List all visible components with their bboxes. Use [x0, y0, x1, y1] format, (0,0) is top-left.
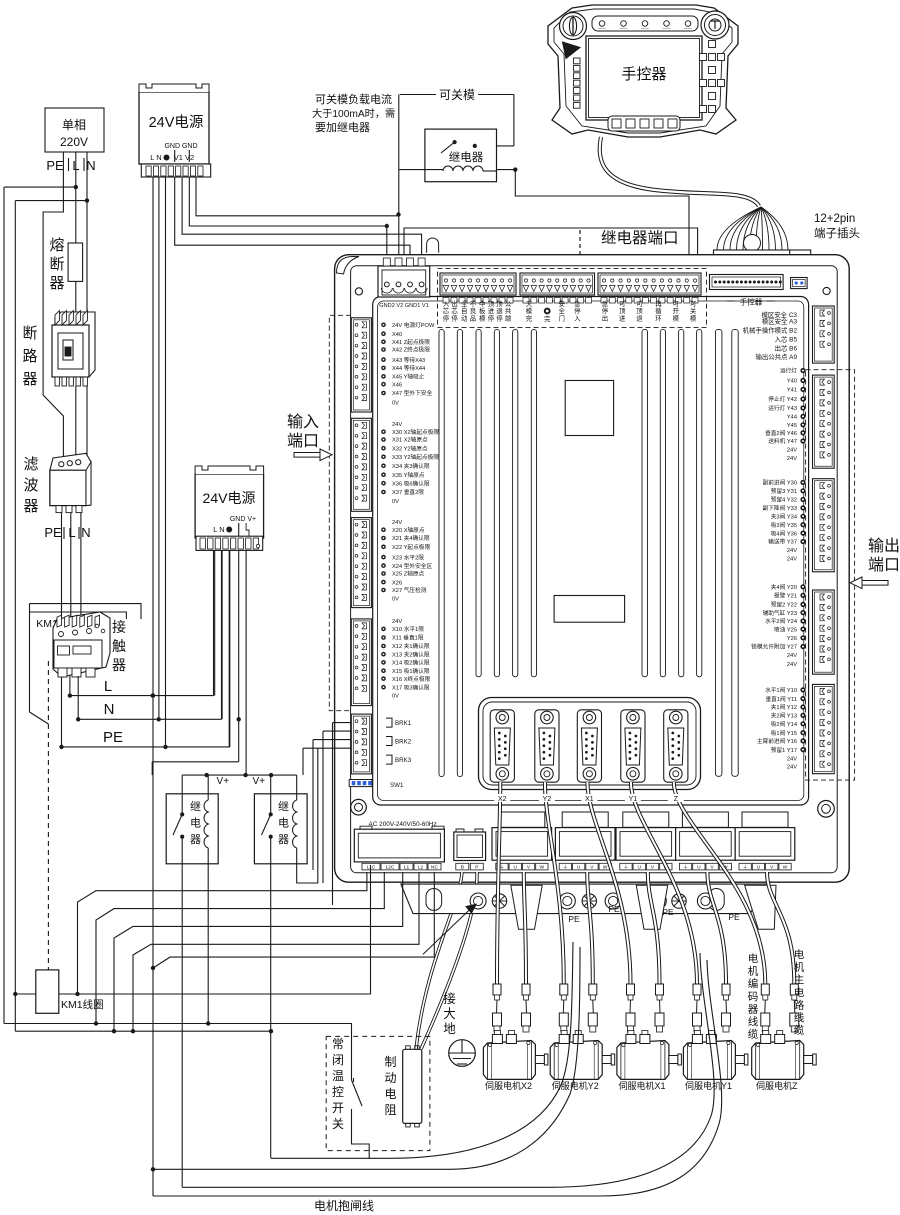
svg-text:模区安全 A3: 模区安全 A3: [762, 317, 798, 326]
svg-text:报警 Y21: 报警 Y21: [774, 592, 797, 600]
svg-text:器: 器: [23, 498, 38, 515]
svg-text:⏚: ⏚: [683, 864, 688, 871]
svg-text:温: 温: [332, 1069, 344, 1083]
svg-text:预留3 Y31: 预留3 Y31: [771, 487, 797, 495]
svg-text:出: 出: [451, 299, 457, 308]
svg-text:熔: 熔: [49, 237, 64, 254]
svg-text:水平2阀 Y24: 水平2阀 Y24: [765, 617, 797, 625]
svg-text:L N: L N: [213, 525, 224, 534]
svg-text:GND GND: GND GND: [164, 143, 197, 150]
svg-text:机械手操作模式 B2: 机械手操作模式 B2: [743, 326, 798, 335]
svg-text:断: 断: [49, 256, 64, 273]
svg-text:电: 电: [794, 986, 805, 999]
svg-text:U: U: [513, 865, 517, 871]
svg-text:顶: 顶: [636, 307, 643, 315]
svg-text:器: 器: [748, 1003, 759, 1015]
svg-text:N: N: [104, 701, 115, 718]
svg-text:模: 模: [690, 313, 697, 322]
svg-text:L2C: L2C: [386, 865, 395, 871]
svg-text:L: L: [104, 678, 112, 695]
svg-text:触: 触: [112, 638, 126, 654]
svg-text:预留4 Y32: 预留4 Y32: [771, 496, 797, 504]
svg-text:单相: 单相: [62, 118, 86, 132]
svg-text:AC 200V-240V/50-60Hz: AC 200V-240V/50-60Hz: [369, 821, 437, 828]
svg-text:X31 X2轴原点: X31 X2轴原点: [392, 436, 428, 444]
svg-text:喷油 Y25: 喷油 Y25: [774, 625, 797, 633]
svg-text:出: 出: [602, 313, 608, 322]
svg-text:动: 动: [384, 1071, 396, 1085]
svg-text:24V: 24V: [787, 765, 797, 771]
svg-text:X40: X40: [392, 332, 402, 338]
svg-text:可: 可: [636, 300, 643, 308]
svg-text:输出: 输出: [868, 537, 900, 555]
svg-text:X20 X轴原点: X20 X轴原点: [392, 526, 425, 534]
svg-text:退: 退: [496, 306, 503, 315]
svg-text:端口: 端口: [868, 556, 900, 574]
svg-text:Y41: Y41: [787, 388, 797, 394]
svg-text:断: 断: [22, 325, 37, 342]
svg-text:X27 气压检测: X27 气压检测: [392, 586, 427, 594]
svg-text:V+: V+: [253, 776, 266, 787]
svg-text:波: 波: [23, 477, 38, 494]
svg-text:Y26: Y26: [787, 636, 797, 642]
svg-text:X37 垂直2限: X37 垂直2限: [392, 488, 424, 496]
svg-text:急: 急: [602, 299, 609, 308]
svg-text:继电器: 继电器: [449, 151, 484, 164]
svg-text:V+: V+: [217, 776, 230, 787]
svg-text:器: 器: [49, 275, 64, 292]
svg-text:NC: NC: [431, 865, 438, 871]
svg-text:L2: L2: [418, 865, 424, 871]
svg-text:环: 环: [655, 314, 662, 322]
svg-text:控: 控: [332, 1085, 344, 1099]
svg-text:Y40: Y40: [787, 379, 797, 385]
svg-text:芯: 芯: [451, 306, 458, 315]
svg-text:接: 接: [443, 991, 456, 1006]
svg-text:24V: 24V: [787, 448, 797, 454]
svg-text:X13 夹2确认限: X13 夹2确认限: [392, 650, 430, 658]
svg-text:可: 可: [690, 300, 697, 308]
svg-text:良: 良: [470, 306, 477, 315]
svg-text:X25 Z轴原点: X25 Z轴原点: [392, 570, 425, 578]
svg-text:副下降阀 Y33: 副下降阀 Y33: [763, 504, 797, 512]
svg-text:停: 停: [602, 306, 609, 315]
svg-text:X34 夹3确认限: X34 夹3确认限: [392, 462, 430, 470]
svg-text:X16 X终点极限: X16 X终点极限: [392, 675, 431, 683]
svg-text:24V: 24V: [392, 619, 402, 625]
svg-text:安: 安: [559, 299, 565, 308]
svg-text:伺服电机Z: 伺服电机Z: [756, 1080, 798, 1091]
svg-text:完: 完: [544, 314, 551, 323]
svg-text:0V: 0V: [392, 597, 399, 603]
svg-text:锁模允许附加 Y27: 锁模允许附加 Y27: [751, 643, 797, 651]
svg-text:X2: X2: [498, 796, 507, 803]
svg-text:X47 型外下安全: X47 型外下安全: [392, 389, 432, 397]
svg-text:电: 电: [794, 948, 805, 961]
svg-text:X41 Z起点极限: X41 Z起点极限: [392, 338, 430, 346]
svg-text:再: 再: [655, 300, 662, 308]
svg-text:吸2阀 Y14: 吸2阀 Y14: [771, 720, 797, 728]
svg-text:X24 型外安全区: X24 型外安全区: [392, 562, 432, 570]
svg-text:吸1阀 Y15: 吸1阀 Y15: [771, 729, 797, 737]
svg-text:器: 器: [278, 833, 289, 846]
svg-text:KM1线圈: KM1线圈: [61, 998, 104, 1011]
svg-text:X10 水平1限: X10 水平1限: [392, 625, 424, 633]
svg-text:Y1: Y1: [629, 796, 638, 803]
svg-text:入芯 B5: 入芯 B5: [775, 335, 798, 344]
svg-text:GND2 V2 GND1 V1: GND2 V2 GND1 V1: [379, 303, 428, 309]
svg-text:X35 Y轴原点: X35 Y轴原点: [392, 471, 425, 479]
svg-text:L1C: L1C: [367, 865, 376, 871]
svg-text:X26: X26: [392, 580, 402, 586]
svg-text:继: 继: [278, 800, 289, 813]
svg-text:V1 V2: V1 V2: [174, 153, 194, 162]
svg-text:吸3阀 Y35: 吸3阀 Y35: [771, 521, 797, 529]
svg-text:运行灯: 运行灯: [780, 367, 797, 375]
svg-text:X11 垂直1限: X11 垂直1限: [392, 634, 424, 642]
svg-text:可关模: 可关模: [439, 88, 475, 102]
svg-text:开: 开: [332, 1101, 344, 1115]
svg-text:急: 急: [574, 299, 581, 308]
svg-text:电机抱闸线: 电机抱闸线: [314, 1198, 374, 1213]
svg-text:可: 可: [619, 300, 626, 308]
svg-text:缆: 缆: [748, 1028, 759, 1041]
svg-text:芯: 芯: [443, 306, 450, 315]
svg-text:U: U: [577, 865, 581, 871]
svg-text:电: 电: [278, 817, 289, 830]
svg-text:X46: X46: [392, 382, 402, 388]
svg-text:编: 编: [748, 977, 759, 990]
svg-text:闭: 闭: [332, 1053, 344, 1067]
svg-text:出芯 B6: 出芯 B6: [775, 344, 798, 353]
svg-text:PE: PE: [728, 912, 740, 922]
svg-text:缆: 缆: [794, 1024, 805, 1037]
svg-text:X21 夹4确认限: X21 夹4确认限: [392, 534, 430, 542]
svg-text:副前进阀 Y30: 副前进阀 Y30: [763, 479, 797, 487]
svg-text:夹4阀 Y20: 夹4阀 Y20: [771, 583, 797, 591]
svg-text:BRK3: BRK3: [395, 757, 412, 764]
svg-text:水平1阀 Y10: 水平1阀 Y10: [765, 686, 797, 694]
svg-text:Y44: Y44: [787, 415, 797, 421]
svg-text:器: 器: [22, 371, 37, 388]
svg-text:吸4阀 Y36: 吸4阀 Y36: [771, 529, 797, 537]
svg-text:大: 大: [443, 1007, 456, 1021]
svg-text:垂直1阀 Y11: 垂直1阀 Y11: [765, 695, 797, 703]
svg-text:进: 进: [488, 307, 495, 315]
svg-text:X22 Y起点极限: X22 Y起点极限: [392, 543, 430, 551]
svg-text:夹1阀 Y12: 夹1阀 Y12: [771, 703, 797, 711]
svg-text:接: 接: [112, 619, 126, 635]
svg-text:U: U: [637, 865, 641, 871]
svg-text:N: N: [81, 525, 90, 540]
svg-text:共: 共: [505, 306, 512, 315]
svg-text:24V: 24V: [392, 520, 402, 526]
svg-text:0V: 0V: [392, 499, 399, 505]
svg-text:电: 电: [748, 952, 759, 965]
svg-text:公: 公: [505, 301, 512, 308]
svg-text:SW1: SW1: [390, 782, 404, 789]
svg-text:常: 常: [332, 1037, 344, 1051]
svg-text:伺服电机X2: 伺服电机X2: [485, 1080, 532, 1091]
svg-text:可关模负载电流: 可关模负载电流: [315, 92, 392, 106]
svg-text:手控器: 手控器: [621, 66, 666, 83]
svg-text:入: 入: [443, 301, 450, 308]
svg-text:X17 吸3确认限: X17 吸3确认限: [392, 683, 430, 691]
svg-text:机: 机: [794, 961, 805, 974]
svg-text:门: 门: [559, 313, 565, 322]
svg-text:24V: 24V: [787, 757, 797, 763]
svg-text:关: 关: [332, 1117, 344, 1131]
svg-text:地: 地: [443, 1022, 456, 1036]
svg-text:24V电源: 24V电源: [203, 490, 256, 506]
svg-text:U: U: [757, 865, 761, 871]
svg-text:Y2: Y2: [543, 796, 552, 803]
svg-text:入: 入: [574, 315, 581, 322]
svg-text:码: 码: [748, 991, 759, 1003]
svg-text:24V: 24V: [392, 422, 402, 428]
svg-text:模区安全 C3: 模区安全 C3: [761, 310, 797, 319]
svg-text:停: 停: [443, 313, 450, 322]
svg-text:伺服电机X1: 伺服电机X1: [618, 1080, 665, 1091]
svg-text:路: 路: [794, 998, 805, 1011]
svg-text:运行灯 Y43: 运行灯 Y43: [768, 404, 797, 412]
svg-text:PE: PE: [46, 158, 64, 173]
svg-text:X12 夹1确认限: X12 夹1确认限: [392, 642, 430, 650]
svg-text:关: 关: [690, 306, 697, 315]
svg-text:手控器: 手控器: [740, 297, 763, 307]
svg-text:要加继电器: 要加继电器: [315, 121, 370, 134]
svg-text:停止灯 Y42: 停止灯 Y42: [768, 395, 797, 403]
svg-text:X14 吸2确认限: X14 吸2确认限: [392, 659, 430, 667]
svg-text:停: 停: [574, 306, 581, 315]
svg-text:X32 Y2轴原点: X32 Y2轴原点: [392, 444, 428, 452]
svg-text:进: 进: [619, 314, 626, 322]
svg-text:12+2pin: 12+2pin: [814, 213, 855, 225]
svg-text:⏚: ⏚: [563, 864, 568, 871]
svg-text:X45 Y轴吸止: X45 Y轴吸止: [392, 373, 425, 381]
svg-text:Y45: Y45: [787, 423, 797, 429]
svg-text:Z: Z: [674, 796, 679, 803]
svg-text:停: 停: [496, 313, 503, 322]
svg-text:⏚: ⏚: [743, 864, 748, 871]
svg-text:端: 端: [505, 313, 512, 322]
svg-text:W: W: [540, 865, 545, 871]
svg-text:输入: 输入: [287, 413, 319, 431]
svg-text:24V电源: 24V电源: [149, 114, 204, 131]
svg-text:垂直2阀 Y46: 垂直2阀 Y46: [765, 429, 797, 437]
svg-text:退: 退: [636, 313, 643, 322]
svg-text:GND V+: GND V+: [230, 516, 256, 523]
svg-text:伺服电机Y1: 伺服电机Y1: [685, 1080, 732, 1091]
svg-text:夹3阀 Y34: 夹3阀 Y34: [771, 513, 797, 521]
svg-text:B: B: [461, 865, 464, 871]
svg-text:自: 自: [461, 306, 467, 315]
svg-text:可: 可: [673, 300, 680, 308]
svg-text:继电器端口: 继电器端口: [601, 229, 679, 247]
svg-text:X33 Y2轴起点极限: X33 Y2轴起点极限: [392, 453, 439, 461]
svg-text:输出公共点 A9: 输出公共点 A9: [755, 352, 797, 361]
svg-text:送料机 Y47: 送料机 Y47: [768, 437, 797, 445]
svg-text:0V: 0V: [392, 401, 399, 407]
svg-text:X44 等待X44: X44 等待X44: [392, 364, 425, 372]
svg-text:预留2 Y22: 预留2 Y22: [771, 601, 797, 609]
svg-text:品: 品: [470, 314, 476, 322]
svg-text:电: 电: [384, 1087, 396, 1101]
svg-text:PE: PE: [103, 729, 123, 746]
svg-text:阻: 阻: [384, 1103, 396, 1117]
svg-text:W: W: [603, 865, 608, 871]
svg-text:顶: 顶: [488, 300, 495, 308]
svg-text:动: 动: [461, 314, 468, 322]
svg-text:模: 模: [673, 313, 680, 322]
svg-text:完: 完: [526, 313, 533, 322]
svg-text:模: 模: [526, 306, 533, 315]
svg-text:X36 吸6确认限: X36 吸6确认限: [392, 479, 430, 487]
svg-text:天: 天: [526, 300, 533, 308]
svg-text:夹2阀 Y13: 夹2阀 Y13: [771, 712, 797, 720]
svg-text:220V: 220V: [60, 135, 88, 149]
svg-text:BRK2: BRK2: [395, 739, 412, 746]
svg-text:开: 开: [673, 307, 680, 315]
svg-text:24V: 24V: [787, 557, 797, 563]
svg-text:中: 中: [479, 299, 485, 308]
svg-text:电: 电: [190, 817, 201, 830]
svg-text:U: U: [697, 865, 701, 871]
svg-text:24V: 24V: [787, 456, 797, 462]
svg-text:X1: X1: [585, 796, 594, 803]
svg-text:不: 不: [470, 300, 477, 308]
svg-text:24V: 24V: [787, 548, 797, 554]
svg-text:顶: 顶: [619, 307, 626, 315]
svg-text:X23 水平2限: X23 水平2限: [392, 553, 424, 561]
svg-text:N: N: [86, 158, 95, 173]
svg-text:全: 全: [461, 299, 468, 308]
svg-text:L N: L N: [150, 153, 161, 162]
svg-text:24V 电源灯POW: 24V 电源灯POW: [392, 321, 435, 329]
svg-text:PE: PE: [568, 914, 580, 924]
svg-text:W: W: [783, 865, 788, 871]
svg-text:继: 继: [190, 800, 201, 813]
svg-text:输送带 Y37: 输送带 Y37: [768, 538, 797, 546]
svg-text:端子插头: 端子插头: [814, 226, 860, 240]
svg-text:24V: 24V: [787, 653, 797, 659]
svg-text:辅助气缸 Y23: 辅助气缸 Y23: [763, 609, 797, 617]
svg-text:制: 制: [384, 1055, 396, 1069]
svg-text:L: L: [68, 525, 75, 540]
svg-text:顶: 顶: [496, 300, 503, 308]
svg-text:PE: PE: [44, 525, 62, 540]
svg-text:P: P: [475, 865, 478, 871]
svg-text:⏚: ⏚: [623, 864, 628, 871]
svg-text:停: 停: [488, 313, 495, 322]
svg-text:BRK1: BRK1: [395, 720, 412, 727]
svg-text:主臂前进阀 Y16: 主臂前进阀 Y16: [757, 737, 797, 745]
svg-text:X30 X2轴起点极限: X30 X2轴起点极限: [392, 428, 439, 436]
svg-text:0V: 0V: [392, 694, 399, 700]
svg-text:X43 等待X43: X43 等待X43: [392, 356, 425, 364]
svg-text:机: 机: [748, 965, 759, 978]
svg-text:24V: 24V: [787, 662, 797, 668]
svg-text:线: 线: [794, 1011, 805, 1024]
svg-text:循: 循: [655, 306, 662, 315]
svg-text:线: 线: [748, 1015, 759, 1028]
svg-text:X42 Z终点极限: X42 Z终点极限: [392, 346, 430, 354]
svg-text:路: 路: [22, 348, 37, 365]
svg-text:PE: PE: [608, 904, 620, 914]
svg-text:器: 器: [190, 833, 201, 846]
svg-text:大于100mA时，需: 大于100mA时，需: [312, 107, 395, 120]
svg-text:器: 器: [112, 657, 126, 673]
svg-text:X15 吸1确认限: X15 吸1确认限: [392, 667, 430, 675]
svg-text:主: 主: [794, 974, 805, 986]
svg-text:全: 全: [559, 306, 566, 315]
svg-text:滤: 滤: [23, 456, 38, 473]
svg-text:模: 模: [479, 313, 486, 322]
svg-text:端口: 端口: [287, 432, 319, 450]
svg-text:板: 板: [479, 306, 486, 315]
svg-text:L1: L1: [404, 865, 410, 871]
svg-text:预留1 Y17: 预留1 Y17: [771, 746, 797, 754]
svg-text:停: 停: [451, 313, 458, 322]
